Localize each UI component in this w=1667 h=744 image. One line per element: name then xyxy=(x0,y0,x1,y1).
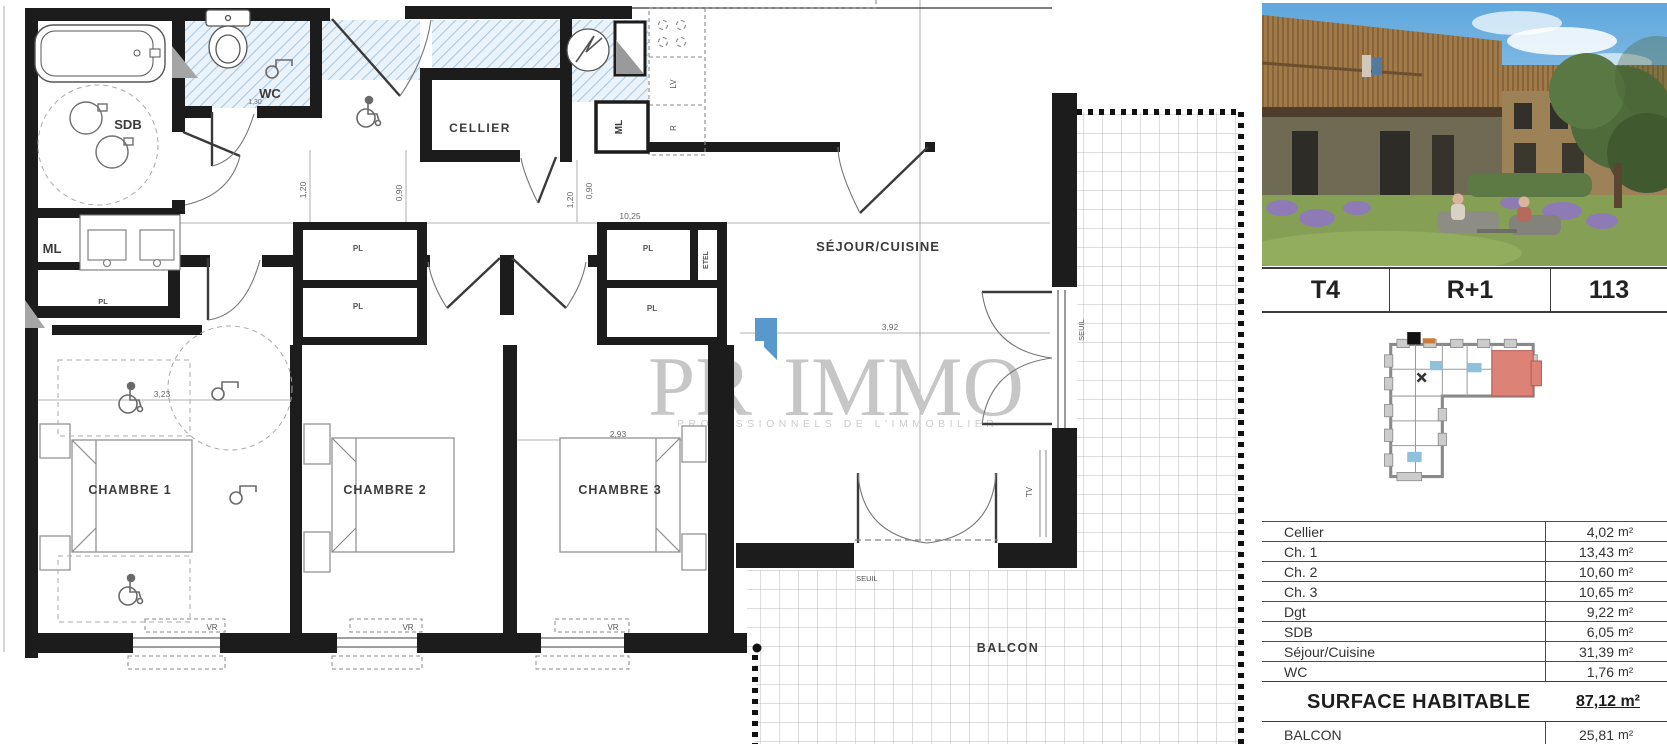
tag-tv: TV xyxy=(1025,486,1034,497)
unit-number: 113 xyxy=(1551,269,1667,311)
bed-chambre2 xyxy=(304,424,454,572)
area-unit: m² xyxy=(1618,524,1633,539)
table-row: Dgt9,22m² xyxy=(1262,601,1667,621)
bed-chambre3 xyxy=(560,426,706,570)
area-label: Dgt xyxy=(1284,604,1306,620)
area-value: 10,65 xyxy=(1579,584,1614,600)
room-label-cellier: CELLIER xyxy=(449,121,511,135)
tag-pl-c2b: PL xyxy=(647,304,657,313)
area-unit: m² xyxy=(1618,584,1633,599)
area-value: 31,39 xyxy=(1579,644,1614,660)
tag-lv: LV xyxy=(669,79,678,89)
table-row: Séjour/Cuisine31,39m² xyxy=(1262,641,1667,661)
tag-seuil-east: SEUIL xyxy=(1077,319,1086,341)
tag-pl-c1b: PL xyxy=(353,302,363,311)
tag-pl-left: PL xyxy=(98,297,108,306)
tag-vr-3: VR xyxy=(607,623,618,632)
area-value: 1,76 xyxy=(1587,664,1614,680)
unit-type: T4 xyxy=(1262,269,1390,311)
area-label: Séjour/Cuisine xyxy=(1284,644,1375,660)
area-unit: m² xyxy=(1618,664,1633,679)
tag-vr-1: VR xyxy=(206,623,217,632)
area-unit: m² xyxy=(1618,644,1633,659)
area-label: WC xyxy=(1284,664,1307,680)
dim-ch3: 2,93 xyxy=(610,429,627,439)
table-row: Ch. 310,65m² xyxy=(1262,581,1667,601)
room-label-balcon: BALCON xyxy=(977,641,1039,655)
bed-chambre1 xyxy=(40,424,192,570)
total-surface-value: 87,12 m² xyxy=(1576,693,1640,711)
table-column-divider xyxy=(1545,722,1546,744)
dim-120-a: 1,20 xyxy=(298,181,308,198)
toilet-icon xyxy=(206,10,250,68)
table-row: Ch. 210,60m² xyxy=(1262,561,1667,581)
dim-090-b: 0,90 xyxy=(584,182,594,199)
tag-pl-c1a: PL xyxy=(353,244,363,253)
walls xyxy=(25,6,1077,658)
balcony-area-row: BALCON 25,81 m² xyxy=(1262,722,1667,744)
area-value: 13,43 xyxy=(1579,544,1614,560)
tag-ml-top: ML xyxy=(614,120,625,134)
dim-ch1: 3,23 xyxy=(154,389,171,399)
area-unit: m² xyxy=(1618,564,1633,579)
area-label: Ch. 1 xyxy=(1284,544,1317,560)
area-value: 9,22 xyxy=(1587,604,1614,620)
electrical-panel-icon xyxy=(567,29,609,71)
area-label: SDB xyxy=(1284,624,1313,640)
technical-shaft xyxy=(615,22,645,75)
unit-info-sidebar: T4 R+1 113 xyxy=(1262,0,1667,744)
tag-ml-left: ML xyxy=(43,241,62,256)
room-label-wc: WC xyxy=(259,86,281,101)
areas-table: Cellier4,02m² Ch. 113,43m² Ch. 210,60m² … xyxy=(1262,521,1667,681)
room-label-chambre1: CHAMBRE 1 xyxy=(88,483,171,497)
watermark: PR IMMO PROFESSIONNELS DE L'IMMOBILIER xyxy=(648,318,1024,434)
building-locator-map xyxy=(1374,330,1554,490)
area-label: Cellier xyxy=(1284,524,1324,540)
balcony-unit: m² xyxy=(1618,727,1633,742)
building-photo xyxy=(1262,3,1667,266)
dim-wc: 1,30 xyxy=(248,99,262,106)
boundary-dot xyxy=(753,644,762,653)
dim-sejour: 3,92 xyxy=(882,322,899,332)
area-label: Ch. 3 xyxy=(1284,584,1317,600)
area-unit: m² xyxy=(1618,544,1633,559)
area-unit: m² xyxy=(1618,604,1633,619)
tag-vr-2: VR xyxy=(402,623,413,632)
balcony-value: 25,81 xyxy=(1579,727,1614,743)
dim-090-a: 0,90 xyxy=(394,184,404,201)
tag-etel: ETEL xyxy=(703,250,710,269)
table-row: Cellier4,02m² xyxy=(1262,521,1667,541)
washbasin-icons xyxy=(70,102,133,168)
table-row: SDB6,05m² xyxy=(1262,621,1667,641)
kitchen-appliances xyxy=(649,0,876,155)
floor-plan-drawing: PR IMMO PROFESSIONNELS DE L'IMMOBILIER xyxy=(0,0,1250,744)
area-value: 10,60 xyxy=(1579,564,1614,580)
watermark-apostrophe-icon xyxy=(755,318,777,360)
unit-floor: R+1 xyxy=(1390,269,1551,311)
table-row: Ch. 113,43m² xyxy=(1262,541,1667,561)
total-surface-row: SURFACE HABITABLE 87,12 m² xyxy=(1262,681,1667,722)
bathtub-icon xyxy=(35,25,165,82)
total-surface-label: SURFACE HABITABLE xyxy=(1307,691,1531,714)
laundry-counter xyxy=(80,215,180,270)
dim-total-width: 10,25 xyxy=(619,211,641,221)
room-label-chambre2: CHAMBRE 2 xyxy=(343,483,426,497)
tag-seuil-south: SEUIL xyxy=(856,574,878,583)
table-column-divider xyxy=(1545,521,1546,682)
room-label-chambre3: CHAMBRE 3 xyxy=(578,483,661,497)
unit-summary-row: T4 R+1 113 xyxy=(1262,267,1667,313)
table-row: WC1,76m² xyxy=(1262,661,1667,681)
tag-pl-c2a: PL xyxy=(643,244,653,253)
tag-fridge: R xyxy=(669,125,678,131)
area-value: 4,02 xyxy=(1587,524,1614,540)
area-value: 6,05 xyxy=(1587,624,1614,640)
room-label-sdb: SDB xyxy=(114,117,141,132)
dim-120-b: 1,20 xyxy=(565,191,575,208)
balcony-label: BALCON xyxy=(1284,727,1342,743)
area-label: Ch. 2 xyxy=(1284,564,1317,580)
area-unit: m² xyxy=(1618,624,1633,639)
floor-plan-page: PR IMMO PROFESSIONNELS DE L'IMMOBILIER xyxy=(0,0,1667,744)
room-label-sejour: SÉJOUR/CUISINE xyxy=(816,239,940,254)
